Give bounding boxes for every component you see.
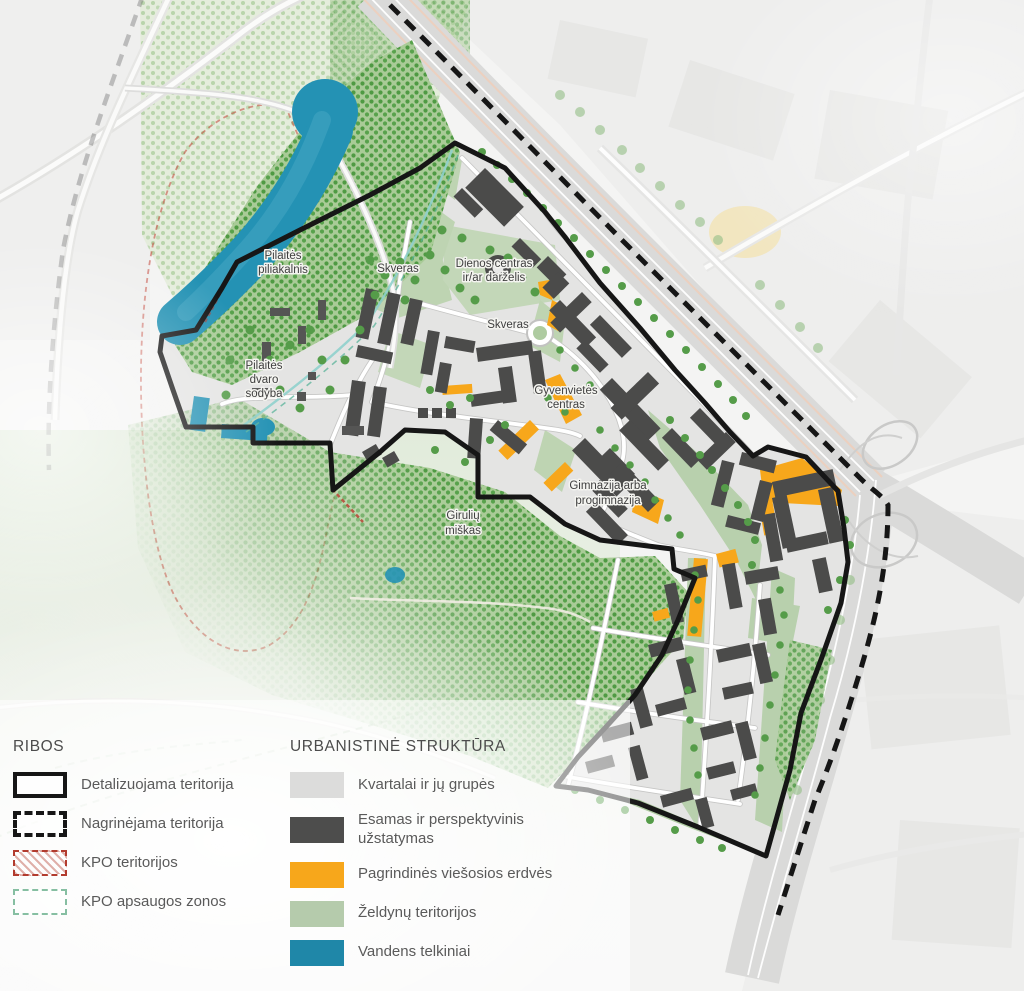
- map-label: Pilaitės: [264, 250, 301, 262]
- map-label: dvaro: [250, 374, 279, 386]
- legend-item-label: KPO apsaugos zonos: [81, 893, 226, 912]
- kpo-territories-swatch: [13, 850, 67, 876]
- map-label: sodyba: [245, 388, 283, 400]
- map-label: Skveras: [487, 319, 529, 331]
- pond: [385, 567, 405, 583]
- blocks-swatch: [290, 772, 344, 798]
- map-label: progimnazija: [575, 495, 641, 507]
- map-label: piliakalnis: [258, 264, 308, 276]
- legend-item-public-spaces: Pagrindinės viešosios erdvės: [290, 862, 588, 888]
- map-label: Girulių: [446, 510, 479, 522]
- legend-item-label: KPO teritorijos: [81, 854, 178, 873]
- detailed-territory-swatch: [13, 772, 67, 798]
- map-label: Gimnazija arba: [569, 480, 647, 492]
- legend-item-green-territories: Želdynų teritorijos: [290, 901, 588, 927]
- water-bodies-swatch: [290, 940, 344, 966]
- public-spaces-swatch: [290, 862, 344, 888]
- map-label: miškas: [445, 525, 481, 537]
- legend-item-label: Nagrinėjama teritorija: [81, 815, 224, 834]
- legend-item-study-territory: Nagrinėjama teritorija: [13, 811, 234, 837]
- legend-boundaries-title: RIBOS: [13, 738, 234, 756]
- legend-item-detailed-territory: Detalizuojama teritorija: [13, 772, 234, 798]
- legend-item-kpo-territories: KPO teritorijos: [13, 850, 234, 876]
- masterplan-screenshot: Pilaitės piliakalnis Skveras Dienos cent…: [0, 0, 1024, 991]
- map-label: Gyvenvietės: [534, 385, 598, 397]
- map-label: Dienos centras: [456, 258, 533, 270]
- kpo-zones-swatch: [13, 889, 67, 915]
- map-label: Pilaitės: [245, 360, 282, 372]
- legend-item-built: Esamas ir perspektyvinis užstatymas: [290, 811, 588, 849]
- legend-item-label: Vandens telkiniai: [358, 943, 470, 962]
- built-swatch: [290, 817, 344, 843]
- legend-structure-title: URBANISTINĖ STRUKTŪRA: [290, 738, 588, 756]
- green-territories-swatch: [290, 901, 344, 927]
- map-label: centras: [547, 399, 585, 411]
- legend-item-label: Želdynų teritorijos: [358, 904, 476, 923]
- legend-item-label: Detalizuojama teritorija: [81, 776, 234, 795]
- legend-item-label: Pagrindinės viešosios erdvės: [358, 865, 552, 884]
- legend-item-kpo-zones: KPO apsaugos zonos: [13, 889, 234, 915]
- map-label: Skveras: [377, 263, 419, 275]
- legend-item-label: Esamas ir perspektyvinis užstatymas: [358, 811, 588, 849]
- legend-item-water-bodies: Vandens telkiniai: [290, 940, 588, 966]
- legend-item-blocks: Kvartalai ir jų grupės: [290, 772, 588, 798]
- legend-structure-column: URBANISTINĖ STRUKTŪRA Kvartalai ir jų gr…: [290, 738, 588, 979]
- legend-item-label: Kvartalai ir jų grupės: [358, 776, 495, 795]
- study-territory-swatch: [13, 811, 67, 837]
- legend-boundaries-column: RIBOS Detalizuojama teritorija Nagrinėja…: [13, 738, 234, 928]
- map-label: ir/ar darželis: [463, 272, 526, 284]
